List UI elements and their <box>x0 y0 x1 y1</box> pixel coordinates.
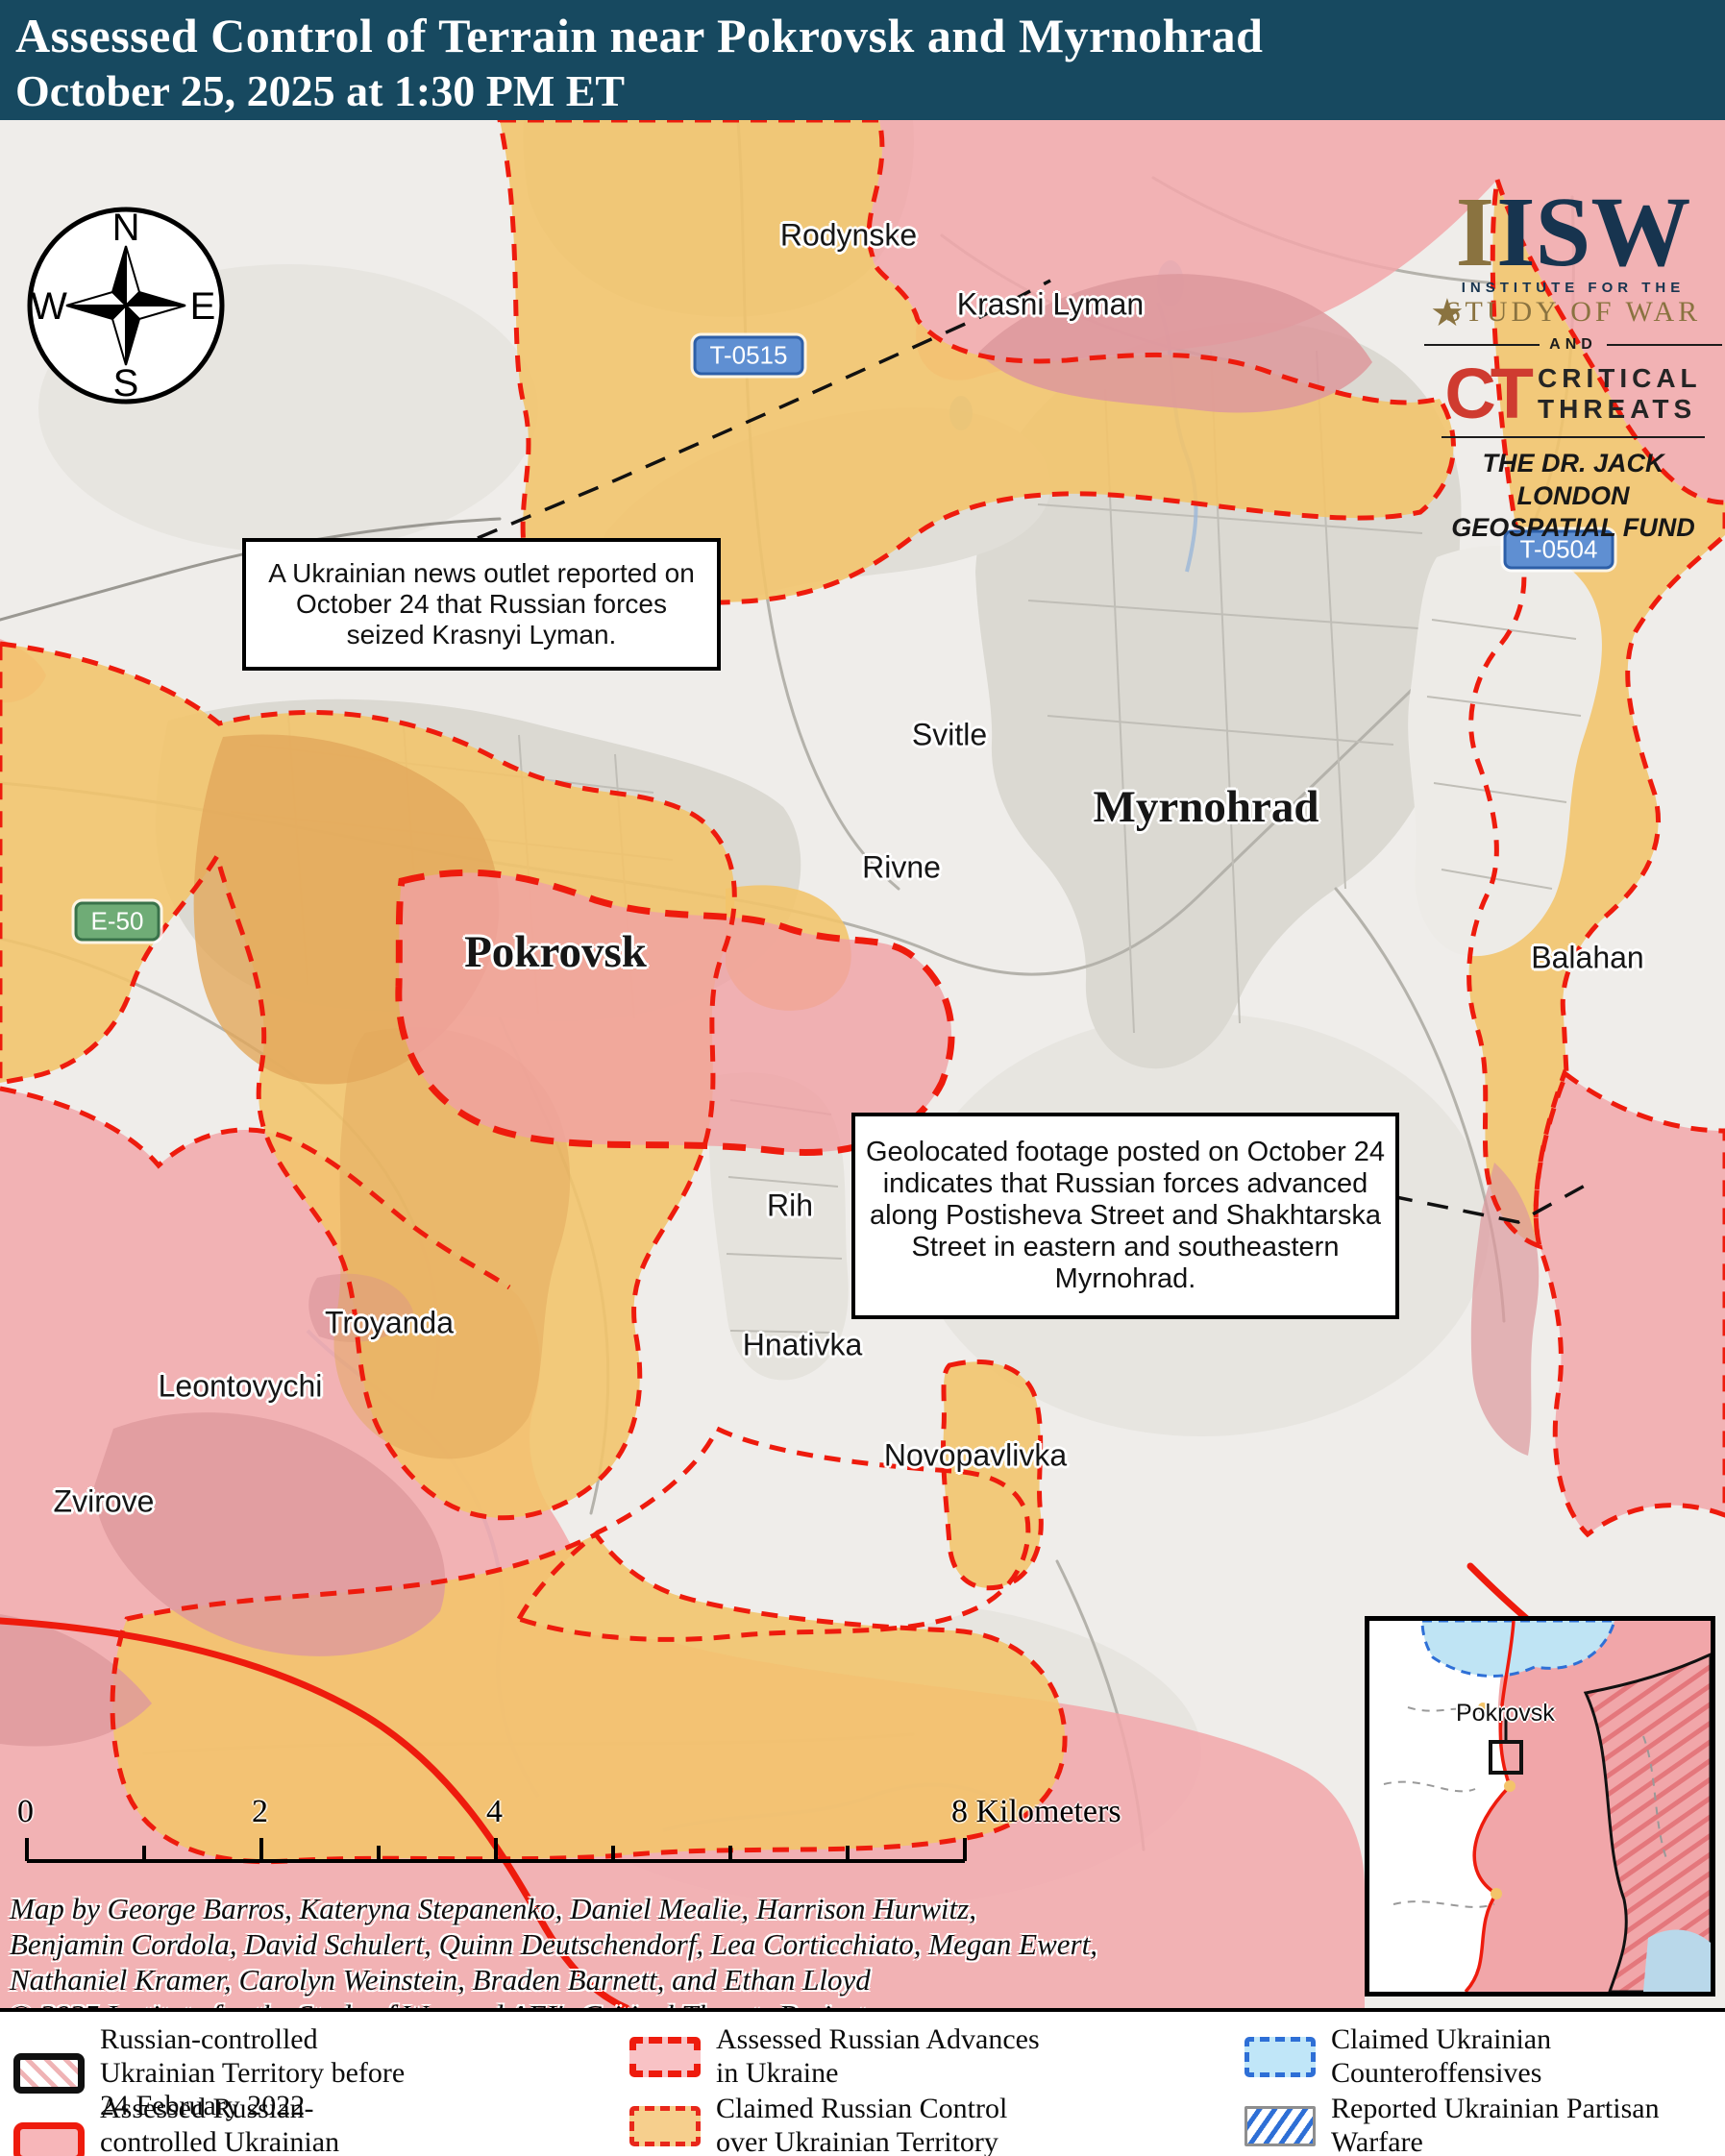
map-label-rih: Rih <box>767 1188 813 1224</box>
isw-map-page: Assessed Control of Terrain near Pokrovs… <box>0 0 1725 2156</box>
map-label-rivne: Rivne <box>862 850 941 886</box>
map-label-krasni-lyman: Krasni Lyman <box>957 287 1144 323</box>
scale-label-0: 0 <box>17 1794 34 1830</box>
swatch-partisan <box>1244 2106 1316 2146</box>
swatch-assessed-control <box>13 2122 85 2156</box>
scale-label-4: 4 <box>486 1794 503 1830</box>
scale-label-2: 2 <box>252 1794 268 1830</box>
map-credits: Map by George Barros, Kateryna Stepanenk… <box>10 1891 1097 2008</box>
compass-e: E <box>190 285 216 328</box>
swatch-advances <box>629 2037 701 2077</box>
swatch-counteroffensives <box>1244 2037 1316 2077</box>
annotation-myrnohrad: Geolocated footage posted on October 24 … <box>851 1113 1399 1319</box>
legend-bar: Russian-controlled Ukrainian Territory b… <box>0 2008 1725 2156</box>
legend-item-partisan: Reported Ukrainian Partisan Warfare <box>1244 2093 1696 2156</box>
map-label-t-0515: T-0515 <box>694 336 804 376</box>
legend-item-assessed-control: Assessed Russian-controlled Ukrainian Te… <box>13 2093 427 2156</box>
critical-threats-logo: CT CRITICALTHREATS <box>1424 363 1722 425</box>
map-canvas[interactable]: N E S W IISW ★ INSTITUTE FOR THE STUDY O… <box>0 120 1725 2008</box>
map-label-svitle: Svitle <box>912 718 987 753</box>
map-label-novopavlivka: Novopavlivka <box>884 1438 1067 1474</box>
swatch-claimed-control <box>629 2106 701 2146</box>
compass-n: N <box>112 207 140 249</box>
ct-mark-icon: CT <box>1444 365 1528 422</box>
map-label-leontovychi: Leontovychi <box>159 1369 323 1405</box>
brand-divider <box>1442 436 1705 438</box>
inset-graphic <box>1369 1621 1711 1992</box>
map-label-rodynske: Rodynske <box>780 218 917 254</box>
map-label-balahan: Balahan <box>1531 941 1643 976</box>
compass-w: W <box>31 285 67 328</box>
map-label-myrnohrad: Myrnohrad <box>1094 781 1319 833</box>
inset-locator-map[interactable]: Pokrovsk <box>1365 1616 1715 1997</box>
map-label-zvirove: Zvirove <box>54 1484 155 1520</box>
branding-block: IISW ★ INSTITUTE FOR THE STUDY OF WAR AN… <box>1424 187 1722 545</box>
map-timestamp: October 25, 2025 at 1:30 PM ET <box>15 65 625 116</box>
map-label-troyanda: Troyanda <box>325 1306 454 1341</box>
legend-item-advances: Assessed Russian Advances in Ukraine <box>629 2023 1043 2090</box>
title-bar: Assessed Control of Terrain near Pokrovs… <box>0 0 1725 120</box>
map-title: Assessed Control of Terrain near Pokrovs… <box>15 8 1263 63</box>
annotation-krasnyi-lyman: A Ukrainian news outlet reported on Octo… <box>242 538 721 671</box>
compass-rose-icon: N E S W <box>24 204 228 407</box>
fund-credit: THE DR. JACK LONDONGEOSPATIAL FUND <box>1424 448 1722 545</box>
isw-wordmark-1: INSTITUTE FOR THE <box>1424 280 1722 296</box>
scale-label-8km: 8 Kilometers <box>951 1794 1121 1830</box>
map-label-pokrovsk: Pokrovsk <box>464 926 647 978</box>
and-divider: AND <box>1424 336 1722 354</box>
map-label-hnativka: Hnativka <box>743 1328 863 1363</box>
legend-item-counteroffensives: Claimed Ukrainian Counteroffensives <box>1244 2023 1696 2090</box>
inset-pokrovsk-label: Pokrovsk <box>1456 1700 1555 1727</box>
isw-logo: IISW <box>1424 187 1722 278</box>
swatch-pre-2022 <box>13 2053 85 2094</box>
legend-item-claimed-control: Claimed Russian Control over Ukrainian T… <box>629 2093 1043 2156</box>
isw-star-icon: ★ <box>1430 291 1465 335</box>
compass-s: S <box>113 362 139 404</box>
isw-wordmark-2: STUDY OF WAR <box>1424 296 1722 329</box>
map-label-e-50: E-50 <box>75 902 160 942</box>
